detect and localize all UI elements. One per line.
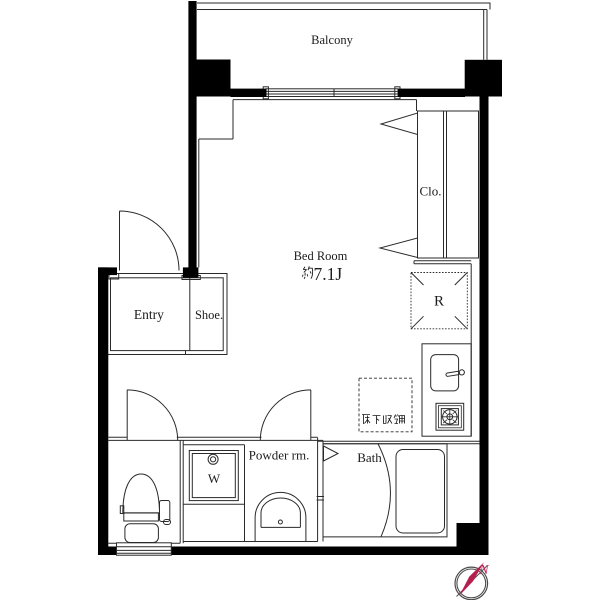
svg-text:Entry: Entry	[134, 307, 164, 322]
svg-text:Bath: Bath	[357, 450, 382, 465]
svg-text:Bed Room: Bed Room	[294, 249, 348, 263]
svg-text:Shoe.: Shoe.	[195, 308, 223, 322]
svg-text:R: R	[434, 294, 444, 310]
svg-text:Balcony: Balcony	[311, 33, 353, 47]
svg-text:Powder rm.: Powder rm.	[249, 448, 310, 463]
svg-text:Clo.: Clo.	[419, 184, 441, 199]
svg-text:W: W	[208, 471, 221, 486]
svg-text:N: N	[478, 562, 489, 577]
svg-text:7.1J: 7.1J	[314, 264, 343, 284]
